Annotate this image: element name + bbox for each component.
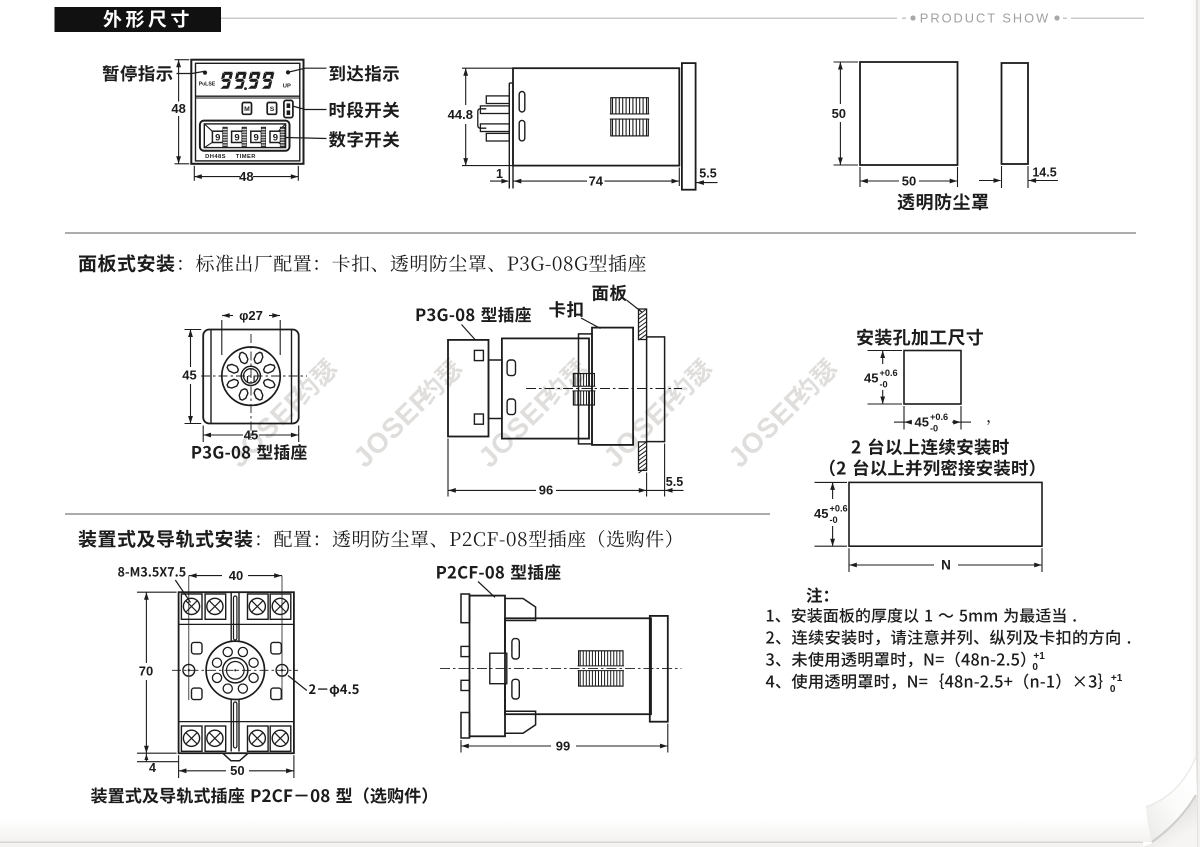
- svg-text:48: 48: [239, 169, 253, 184]
- svg-text:PυLSE: PυLSE: [199, 81, 216, 87]
- svg-text:50: 50: [230, 763, 244, 778]
- svg-text:14.5: 14.5: [1032, 165, 1056, 179]
- svg-text:4: 4: [149, 761, 156, 775]
- svg-text:0: 0: [1032, 662, 1038, 673]
- svg-text:5.5: 5.5: [666, 475, 683, 489]
- svg-text:-0: -0: [930, 424, 938, 434]
- svg-text:DH48S: DH48S: [205, 154, 226, 160]
- svg-text:50: 50: [832, 106, 846, 121]
- svg-text:9: 9: [234, 133, 239, 144]
- svg-text:44.8: 44.8: [448, 107, 473, 122]
- svg-text:UP: UP: [283, 84, 291, 90]
- svg-text:-0: -0: [830, 515, 838, 525]
- svg-text:70: 70: [139, 664, 153, 679]
- svg-text:N: N: [941, 558, 951, 573]
- svg-text:45: 45: [864, 370, 878, 385]
- svg-text:40: 40: [229, 568, 243, 583]
- svg-text:+1: +1: [1033, 651, 1045, 662]
- svg-text:9: 9: [254, 133, 259, 144]
- svg-text:5.5: 5.5: [699, 166, 716, 180]
- svg-text:1: 1: [496, 167, 503, 181]
- svg-text:74: 74: [589, 173, 604, 188]
- svg-text:-0: -0: [880, 379, 888, 389]
- svg-text:45: 45: [915, 415, 929, 430]
- svg-text:M: M: [244, 106, 250, 113]
- svg-text:45: 45: [814, 506, 828, 521]
- svg-text:9: 9: [215, 133, 220, 144]
- svg-text:S: S: [270, 106, 275, 113]
- svg-text:9: 9: [273, 133, 278, 144]
- svg-text:96: 96: [539, 483, 553, 498]
- svg-text:+0.6: +0.6: [880, 368, 898, 378]
- svg-text:0: 0: [1110, 684, 1116, 695]
- svg-text:+0.6: +0.6: [830, 504, 848, 514]
- svg-text:PRODUCT SHOW: PRODUCT SHOW: [920, 11, 1050, 26]
- svg-text:TIMER: TIMER: [236, 154, 256, 160]
- svg-text:99: 99: [556, 738, 570, 753]
- svg-text:45: 45: [244, 427, 258, 442]
- svg-text:45: 45: [182, 368, 196, 383]
- svg-text:φ27: φ27: [239, 308, 263, 323]
- svg-text:+1: +1: [1111, 673, 1123, 684]
- svg-text:+0.6: +0.6: [930, 412, 948, 422]
- svg-text:50: 50: [902, 173, 916, 188]
- svg-text:48: 48: [171, 101, 185, 116]
